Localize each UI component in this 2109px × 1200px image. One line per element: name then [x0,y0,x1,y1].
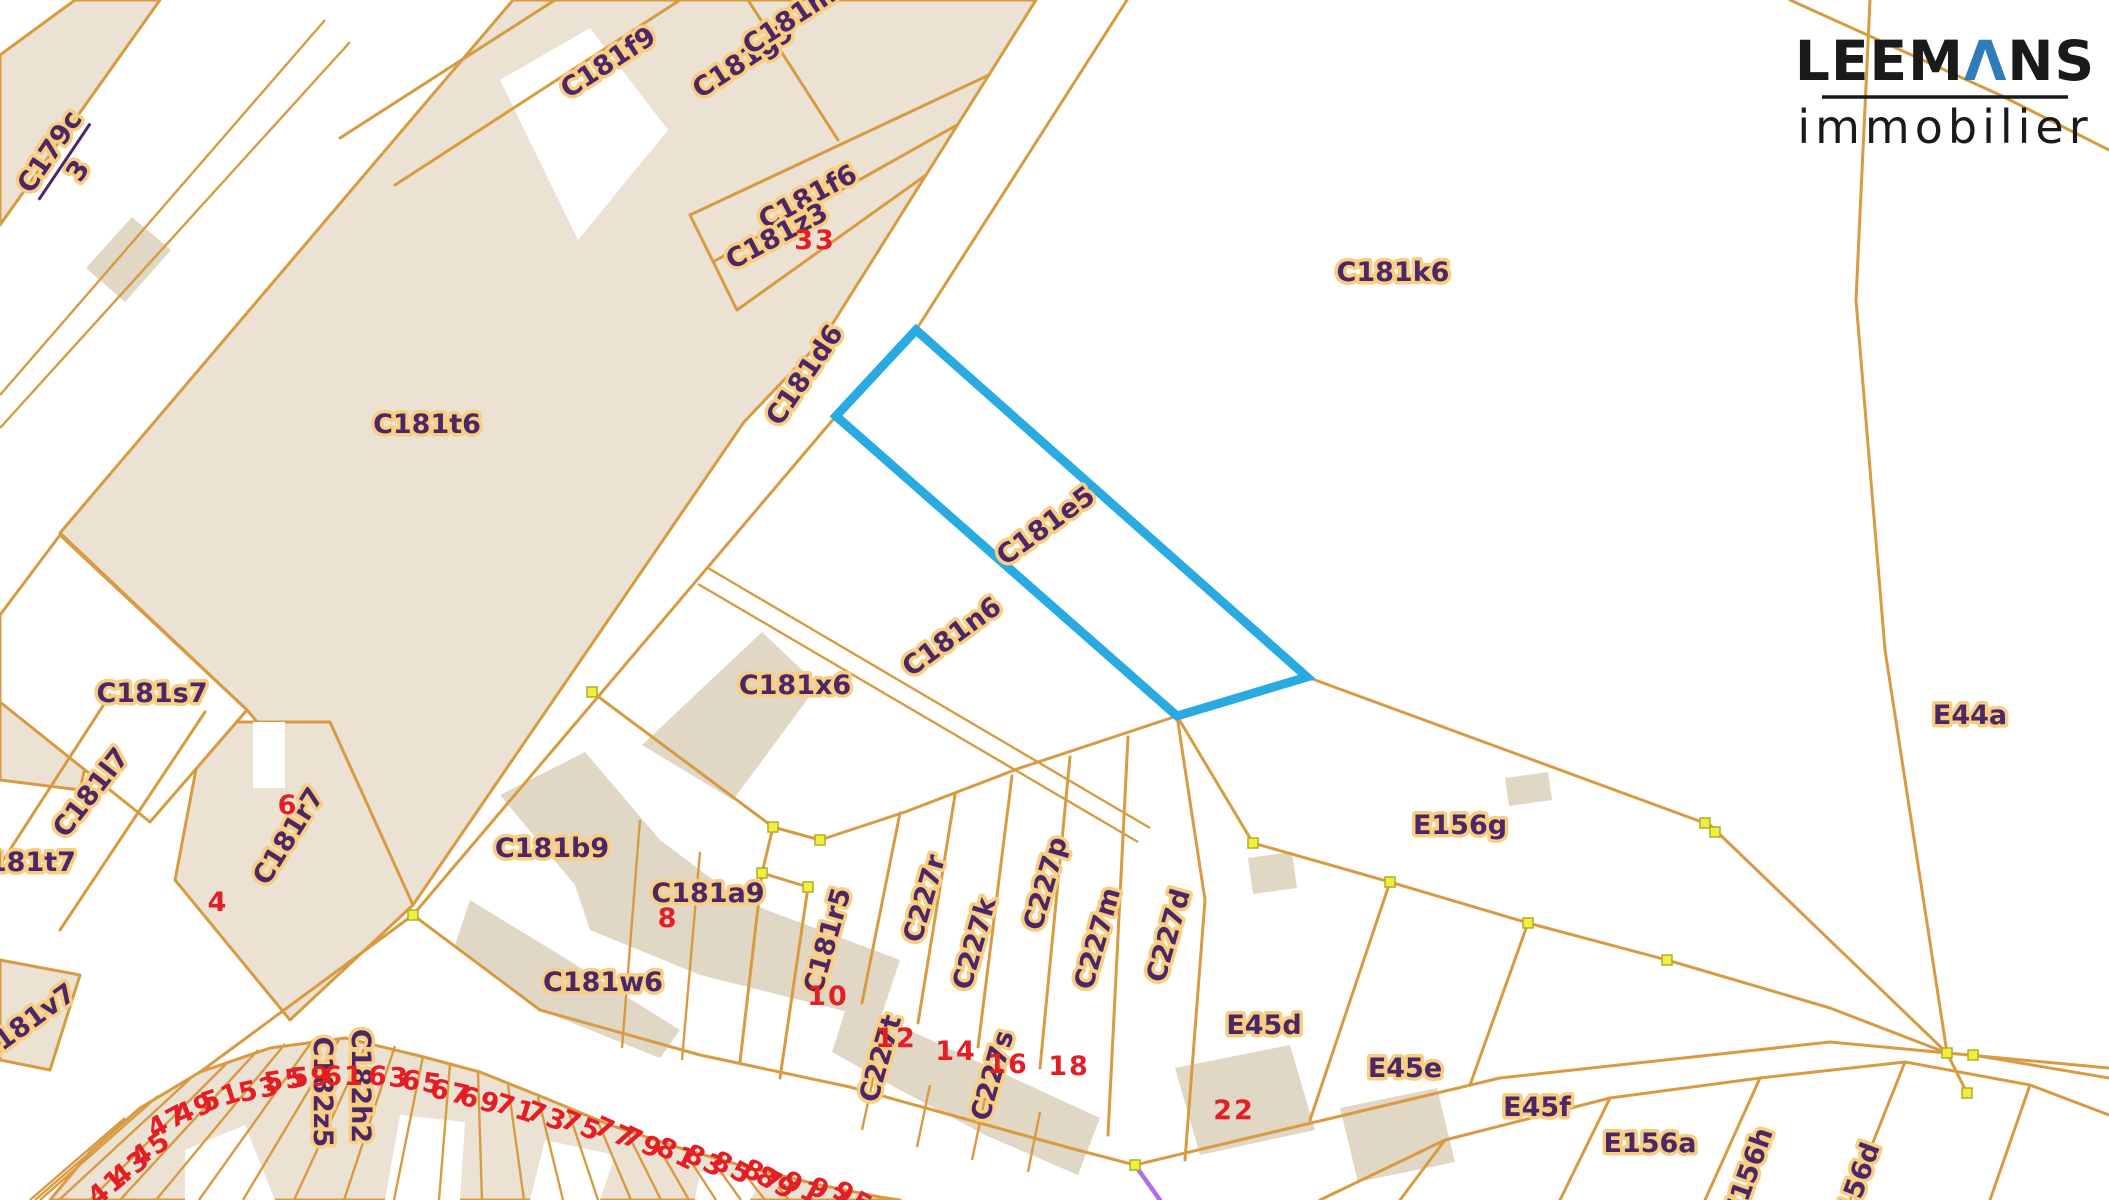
leemans-logo: LEEMΛNS immobilier [1795,29,2095,154]
logo-subtitle: immobilier [1797,100,2092,154]
parcel-label: C181n6 [897,591,1008,683]
house-number: 4 [208,887,229,918]
house-number: 95 [827,1175,879,1200]
white-notch-bl [253,722,285,788]
parcel-label: E44a [1933,700,2007,731]
parcel-label: E45d [1226,1010,1301,1041]
parcel-label: C181s7 [96,678,207,709]
house-number: 16 [987,1049,1029,1080]
parcel-label: C181w6 [543,967,663,998]
house-number: 12 [875,1023,917,1054]
parcel-label: E45e [1368,1053,1442,1084]
logo-lambda-icon: Λ [1964,29,2008,93]
house-number: 8 [658,903,679,934]
cadastral-map-canvas[interactable]: C181f9C181g9C181m6C181f6C181z3C181d6C181… [0,0,2109,1200]
house-number: 33 [794,225,836,256]
parcel-label: C181k6 [1337,257,1450,288]
parcel-label: C181t7 [0,847,76,878]
building-c181x6 [642,632,818,800]
cadastral-map-viewport[interactable]: C181f9C181g9C181m6C181f6C181z3C181d6C181… [0,0,2109,1200]
building-e45d-small [1248,852,1297,894]
house-number: 10 [807,981,849,1012]
parcel-label: C181x6 [739,670,851,701]
parcel-label: E156h [1718,1124,1779,1200]
parcel-label: C227k [947,893,1003,993]
parcel-c179c [0,0,160,225]
house-number: 6 [278,790,299,821]
house-number: 18 [1048,1051,1090,1082]
house-number: 61 [323,1061,365,1092]
parcel-label: E45f [1503,1092,1571,1123]
logo-wordmark: LEEMΛNS [1795,29,2095,93]
parcel-label: E156g [1413,810,1507,841]
parcel-label: C181t6 [373,409,481,440]
house-number: 14 [935,1036,977,1067]
parcel-label: E156a [1603,1128,1696,1159]
building-strip-left [86,217,171,302]
parcel-label: C227p [1018,833,1074,933]
building-e156g-small [1505,772,1552,806]
parcel-label: C227d [1141,885,1197,985]
house-number: 22 [1213,1095,1255,1126]
parcel-label: E156d [1825,1139,1886,1200]
parcel-label: C227r [898,851,953,946]
parcel-label: C181e5 [991,480,1101,572]
parcel-label: C181b9 [495,833,609,864]
